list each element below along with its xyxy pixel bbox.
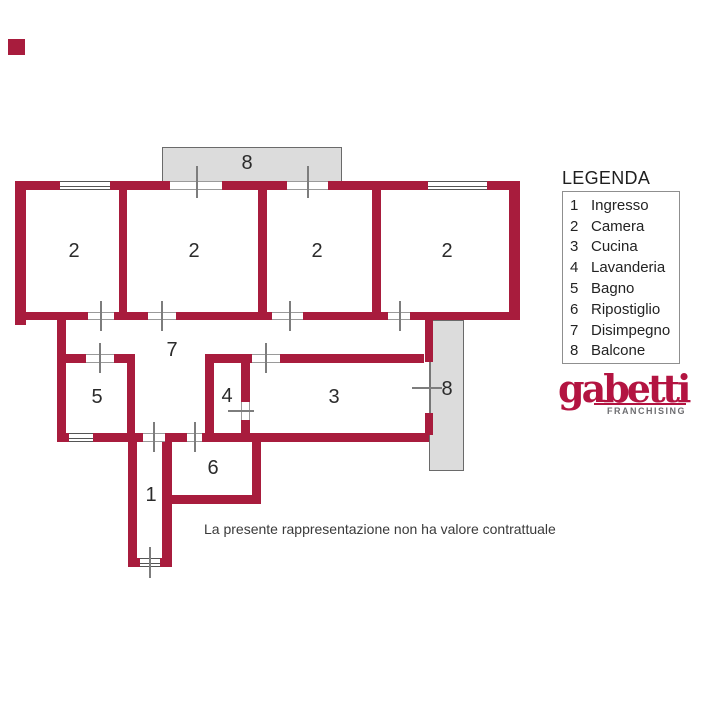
legend-item: 2Camera [563, 216, 679, 237]
wall-segment [15, 312, 88, 320]
legend-item-label: Disimpegno [591, 322, 670, 339]
door-tick [194, 422, 196, 452]
door-tick [153, 422, 155, 452]
wall-segment [110, 181, 170, 190]
legend-item-label: Ripostiglio [591, 301, 660, 318]
room-label-camera-1: 2 [68, 241, 79, 261]
wall-segment [165, 433, 187, 442]
room-label-cucina: 3 [328, 387, 339, 407]
legend-item-label: Camera [591, 218, 644, 235]
red-marker [8, 39, 25, 55]
legend-item: 5Bagno [563, 278, 679, 299]
legend-item-label: Balcone [591, 342, 645, 359]
room-label-camera-4: 2 [441, 241, 452, 261]
legend-item-number: 6 [570, 301, 585, 318]
wall-segment [241, 420, 250, 442]
wall-segment [176, 312, 272, 320]
legend-item: 8Balcone [563, 341, 679, 362]
legend-item-number: 4 [570, 259, 585, 276]
legend-item-label: Cucina [591, 238, 638, 255]
room-label-camera-3: 2 [311, 241, 322, 261]
floorplan-screenshot: 2 2 2 2 7 5 4 3 6 1 8 8 LEGENDA 1Ingress… [0, 0, 720, 720]
legend-item: 6Ripostiglio [563, 299, 679, 320]
door-tick [399, 301, 401, 331]
wall-segment [127, 363, 135, 442]
wall-segment [252, 437, 261, 504]
room-label-disimpegno: 7 [166, 340, 177, 360]
legend-item-number: 8 [570, 342, 585, 359]
wall-segment [57, 320, 66, 442]
window-symbol [428, 181, 487, 190]
wall-segment [65, 354, 86, 363]
room-label-ripostiglio: 6 [207, 458, 218, 478]
door-opening [272, 312, 303, 320]
window-symbol [69, 433, 93, 442]
door-tick [228, 410, 254, 412]
legend-item-label: Lavanderia [591, 259, 665, 276]
room-label-ingresso: 1 [145, 485, 156, 505]
wall-segment [258, 190, 267, 312]
door-tick [265, 343, 267, 373]
gabetti-logo: gabetti FRANCHISING [558, 370, 686, 422]
legend-item: 4Lavanderia [563, 257, 679, 278]
wall-segment [57, 433, 69, 442]
wall-segment [410, 312, 520, 320]
wall-left-outer [15, 181, 26, 325]
room-label-balcone-right: 8 [441, 379, 452, 399]
wall-right-outer [509, 181, 520, 320]
wall-segment [425, 413, 433, 435]
wall-segment [280, 354, 424, 363]
legend-box: 1Ingresso 2Camera 3Cucina 4Lavanderia 5B… [562, 191, 680, 364]
legend-item: 1Ingresso [563, 195, 679, 216]
room-label-bagno: 5 [91, 387, 102, 407]
wall-segment [128, 442, 137, 567]
wall-segment [128, 558, 140, 567]
door-tick [161, 301, 163, 331]
wall-segment [162, 495, 261, 504]
gabetti-logo-tagline: FRANCHISING [607, 406, 686, 416]
wall-segment [328, 181, 428, 190]
gabetti-logo-rule [594, 403, 686, 405]
wall-segment [202, 433, 429, 442]
legend-title: LEGENDA [562, 168, 650, 189]
wall-segment [425, 320, 433, 362]
wall-segment [222, 181, 287, 190]
legend-item-number: 2 [570, 218, 585, 235]
disclaimer-text: La presente rappresentazione non ha valo… [204, 521, 556, 537]
legend-item-label: Bagno [591, 280, 634, 297]
wall-segment [114, 312, 148, 320]
legend-item-number: 1 [570, 197, 585, 214]
wall-segment [114, 354, 135, 363]
room-label-lavanderia: 4 [221, 386, 232, 406]
wall-segment [160, 558, 172, 567]
wall-segment [303, 312, 388, 320]
legend-item-label: Ingresso [591, 197, 649, 214]
wall-segment [119, 190, 127, 312]
room-label-balcone-top: 8 [241, 153, 252, 173]
legend-item-number: 7 [570, 322, 585, 339]
door-tick [100, 301, 102, 331]
door-tick [412, 387, 442, 389]
room-label-camera-2: 2 [188, 241, 199, 261]
wall-segment [205, 354, 214, 442]
legend-item-number: 5 [570, 280, 585, 297]
door-tick [99, 343, 101, 373]
legend-item: 3Cucina [563, 237, 679, 258]
wall-segment [372, 190, 381, 312]
legend-item: 7Disimpegno [563, 320, 679, 341]
door-tick [307, 166, 309, 198]
door-tick [196, 166, 198, 198]
door-tick [289, 301, 291, 331]
door-tick [149, 547, 151, 578]
wall-segment [205, 354, 252, 363]
window-symbol [60, 181, 110, 190]
legend-item-number: 3 [570, 238, 585, 255]
wall-segment [93, 433, 143, 442]
